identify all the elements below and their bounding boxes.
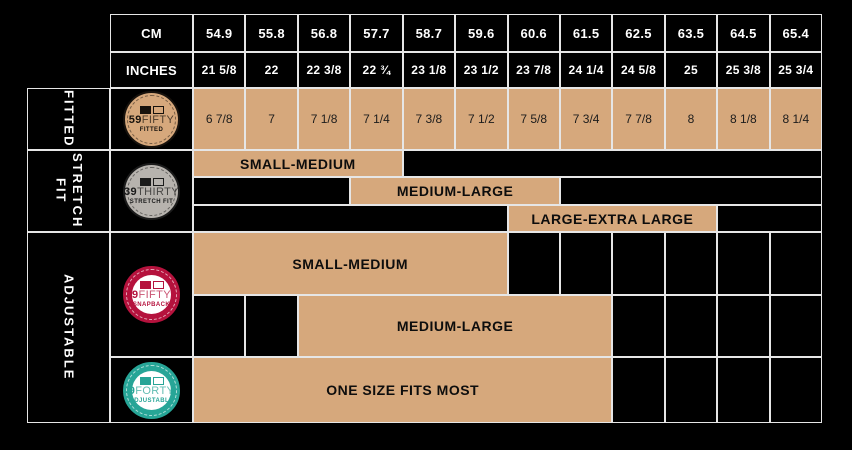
adjustable-band-one-size: ONE SIZE FITS MOST (193, 357, 612, 423)
stretch-band-small-medium: SMALL-MEDIUM (193, 150, 403, 177)
badge-word: THIRTY (137, 186, 179, 198)
brand-logo-cell-9fifty: 9FIFTY SNAPBACK (110, 232, 193, 357)
empty-range-cell (193, 295, 245, 357)
badge-number: 59 (129, 114, 142, 126)
cm-value-cell: 56.8 (298, 14, 350, 52)
empty-range-cell (770, 295, 822, 357)
empty-range-cell (665, 295, 717, 357)
empty-range-cell (717, 295, 769, 357)
category-label-text: STRETCH FIT (52, 153, 85, 229)
cm-value-cell: 65.4 (770, 14, 822, 52)
empty-range-cell (612, 232, 664, 295)
fitted-size-cell: 7 (245, 88, 297, 150)
category-label-stretch-fit: STRETCH FIT (27, 150, 110, 232)
59fifty-badge-icon: 59FIFTY FITTED (123, 91, 180, 148)
inches-value-cell: 23 1/2 (455, 52, 507, 88)
empty-range-cell (245, 295, 297, 357)
cm-row-label: CM (110, 14, 193, 52)
stretch-band-medium-large: MEDIUM-LARGE (350, 177, 560, 205)
fitted-size-cell: 7 3/4 (560, 88, 612, 150)
inches-value-cell: 23 1/8 (403, 52, 455, 88)
new-era-flag-icon (140, 106, 164, 114)
badge-subtitle: SNAPBACK (133, 302, 170, 308)
empty-range-cell (612, 357, 664, 423)
badge-word: FORTY (135, 385, 174, 397)
inches-value-cell: 21 5/8 (193, 52, 245, 88)
inches-value-cell: 22 (245, 52, 297, 88)
9fifty-badge-icon: 9FIFTY SNAPBACK (123, 266, 180, 323)
cm-value-cell: 59.6 (455, 14, 507, 52)
fitted-size-cell: 7 5/8 (508, 88, 560, 150)
empty-range-cell (193, 177, 350, 205)
inches-value-cell: 25 3/8 (717, 52, 769, 88)
inches-value-cell: 25 (665, 52, 717, 88)
fitted-size-cell: 8 (665, 88, 717, 150)
category-label-text: ADJUSTABLE (60, 274, 76, 380)
fitted-size-cell: 7 1/2 (455, 88, 507, 150)
badge-word: FIFTY (142, 114, 175, 126)
cm-value-cell: 64.5 (717, 14, 769, 52)
badge-subtitle: ADJUSTABLE (130, 398, 174, 404)
adjustable-band-medium-large: MEDIUM-LARGE (298, 295, 613, 357)
cm-value-cell: 60.6 (508, 14, 560, 52)
empty-range-cell (508, 232, 560, 295)
new-era-flag-icon (140, 377, 164, 385)
adjustable-band-small-medium: SMALL-MEDIUM (193, 232, 508, 295)
badge-subtitle: FITTED (140, 127, 163, 133)
empty-range-cell (665, 357, 717, 423)
empty-range-cell (717, 232, 769, 295)
empty-range-cell (770, 357, 822, 423)
empty-range-cell (193, 205, 508, 232)
inches-value-cell: 23 7/8 (508, 52, 560, 88)
fitted-size-cell: 7 7/8 (612, 88, 664, 150)
cm-value-cell: 61.5 (560, 14, 612, 52)
empty-range-cell (770, 232, 822, 295)
brand-logo-cell-9forty: 9FORTY ADJUSTABLE (110, 357, 193, 423)
empty-range-cell (665, 232, 717, 295)
size-chart-grid: CM 54.9 55.8 56.8 57.7 58.7 59.6 60.6 61… (27, 14, 822, 423)
inches-value-cell: 22 ¾ (350, 52, 402, 88)
brand-logo-cell-39thirty: 39THIRTY STRETCH FIT (110, 150, 193, 232)
fitted-size-cell: 7 3/8 (403, 88, 455, 150)
empty-range-cell (717, 205, 822, 232)
size-chart: CM 54.9 55.8 56.8 57.7 58.7 59.6 60.6 61… (0, 0, 852, 450)
cm-value-cell: 54.9 (193, 14, 245, 52)
category-label-adjustable: ADJUSTABLE (27, 232, 110, 423)
category-label-text: FITTED (60, 90, 76, 148)
9forty-badge-icon: 9FORTY ADJUSTABLE (123, 362, 180, 419)
empty-range-cell (403, 150, 822, 177)
fitted-size-cell: 8 1/4 (770, 88, 822, 150)
cm-value-cell: 63.5 (665, 14, 717, 52)
inches-value-cell: 24 5/8 (612, 52, 664, 88)
brand-logo-cell-59fifty: 59FIFTY FITTED (110, 88, 193, 150)
inches-value-cell: 24 1/4 (560, 52, 612, 88)
category-label-fitted: FITTED (27, 88, 110, 150)
fitted-size-cell: 6 7/8 (193, 88, 245, 150)
badge-subtitle: STRETCH FIT (130, 199, 173, 205)
39thirty-badge-icon: 39THIRTY STRETCH FIT (123, 163, 180, 220)
new-era-flag-icon (140, 281, 164, 289)
cm-value-cell: 62.5 (612, 14, 664, 52)
stretch-band-large-extra-large: LARGE-EXTRA LARGE (508, 205, 718, 232)
inches-value-cell: 25 3/4 (770, 52, 822, 88)
empty-range-cell (560, 177, 822, 205)
fitted-size-cell: 7 1/4 (350, 88, 402, 150)
inches-row-label: INCHES (110, 52, 193, 88)
empty-range-cell (717, 357, 769, 423)
badge-word: FIFTY (138, 289, 171, 301)
fitted-size-cell: 7 1/8 (298, 88, 350, 150)
empty-range-cell (560, 232, 612, 295)
cm-value-cell: 55.8 (245, 14, 297, 52)
fitted-size-cell: 8 1/8 (717, 88, 769, 150)
cm-value-cell: 57.7 (350, 14, 402, 52)
new-era-flag-icon (140, 178, 164, 186)
inches-value-cell: 22 3/8 (298, 52, 350, 88)
empty-range-cell (612, 295, 664, 357)
badge-number: 39 (124, 186, 137, 198)
cm-value-cell: 58.7 (403, 14, 455, 52)
